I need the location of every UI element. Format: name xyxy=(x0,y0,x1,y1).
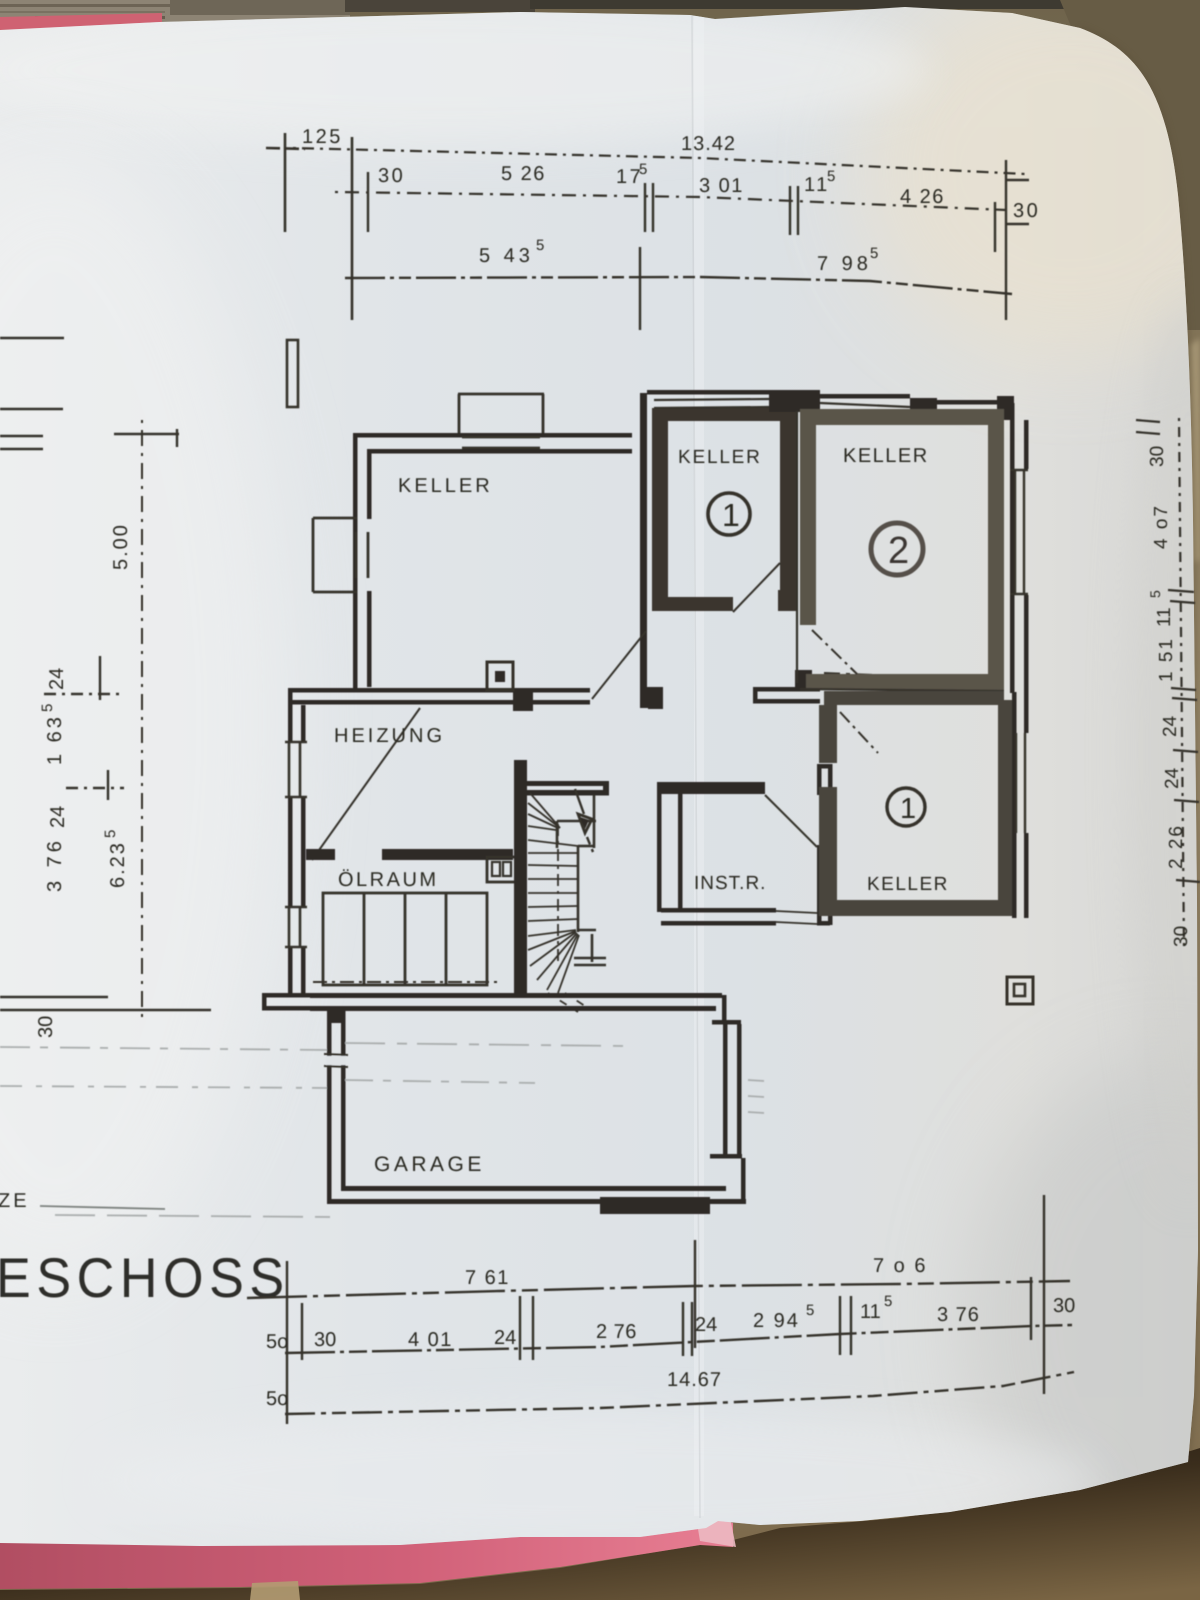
svg-text:2 94: 2 94 xyxy=(753,1310,800,1332)
svg-text:3 01: 3 01 xyxy=(699,175,744,197)
svg-text:ESCHOSS: ESCHOSS xyxy=(0,1246,290,1309)
svg-text:11: 11 xyxy=(860,1301,881,1323)
svg-text:24: 24 xyxy=(494,1327,516,1349)
svg-text:24: 24 xyxy=(695,1314,717,1336)
svg-text:5: 5 xyxy=(1147,590,1163,598)
svg-text:30: 30 xyxy=(1171,926,1192,947)
svg-text:30: 30 xyxy=(1053,1295,1075,1317)
svg-text:3 76: 3 76 xyxy=(44,837,66,892)
svg-text:5: 5 xyxy=(639,161,650,178)
svg-text:HEIZUNG: HEIZUNG xyxy=(334,725,445,747)
svg-text:6.23: 6.23 xyxy=(107,841,129,888)
svg-text:INST.R.: INST.R. xyxy=(694,873,766,894)
svg-text:3 76: 3 76 xyxy=(937,1304,980,1326)
svg-text:30: 30 xyxy=(378,165,405,187)
svg-text:2: 2 xyxy=(888,530,909,572)
svg-text:2 26: 2 26 xyxy=(1166,824,1187,869)
svg-text:5 26: 5 26 xyxy=(501,163,546,185)
svg-text:KELLER: KELLER xyxy=(867,874,949,895)
svg-text:5: 5 xyxy=(536,237,544,254)
svg-text:5: 5 xyxy=(870,245,878,262)
svg-text:KELLER: KELLER xyxy=(398,475,493,497)
svg-text:1 51: 1 51 xyxy=(1156,637,1177,682)
svg-text:24: 24 xyxy=(47,806,69,828)
svg-text:5o: 5o xyxy=(266,1331,288,1353)
svg-text:30: 30 xyxy=(1013,200,1040,222)
svg-text:11: 11 xyxy=(804,174,830,196)
svg-text:24: 24 xyxy=(46,668,68,690)
svg-text:5.00: 5.00 xyxy=(110,523,132,570)
svg-text:30: 30 xyxy=(35,1016,57,1038)
svg-text:5o: 5o xyxy=(266,1388,288,1410)
svg-text:1 63: 1 63 xyxy=(44,714,66,765)
svg-text:24: 24 xyxy=(1162,767,1183,789)
svg-text:14.67: 14.67 xyxy=(667,1369,722,1391)
svg-text:30: 30 xyxy=(1147,446,1168,467)
svg-text:13.42: 13.42 xyxy=(681,133,736,155)
svg-text:5: 5 xyxy=(39,704,56,712)
svg-text:7 98: 7 98 xyxy=(817,253,872,275)
svg-text:ZE: ZE xyxy=(0,1190,30,1212)
svg-text:GARAGE: GARAGE xyxy=(374,1153,485,1176)
svg-text:125: 125 xyxy=(302,126,343,148)
svg-text:5 43: 5 43 xyxy=(479,245,534,267)
svg-text:5: 5 xyxy=(884,1293,892,1310)
svg-text:5: 5 xyxy=(102,830,119,838)
svg-text:ÖLRAUM: ÖLRAUM xyxy=(338,869,439,891)
svg-text:5: 5 xyxy=(827,168,838,185)
svg-text:5: 5 xyxy=(806,1302,814,1319)
svg-text:11: 11 xyxy=(1154,607,1175,627)
svg-text:30: 30 xyxy=(314,1329,336,1351)
svg-text:7 61: 7 61 xyxy=(465,1267,510,1289)
svg-text:4 o7: 4 o7 xyxy=(1151,504,1172,549)
svg-text:KELLER: KELLER xyxy=(843,445,929,467)
svg-text:7 o 6: 7 o 6 xyxy=(873,1255,927,1277)
svg-text:4 01: 4 01 xyxy=(408,1329,453,1351)
svg-text:1: 1 xyxy=(722,497,740,533)
svg-text:KELLER: KELLER xyxy=(678,447,762,468)
svg-text:4 26: 4 26 xyxy=(900,186,945,208)
svg-text:24: 24 xyxy=(1160,715,1181,737)
svg-text:1: 1 xyxy=(900,793,916,825)
svg-text:2 76: 2 76 xyxy=(596,1321,637,1343)
